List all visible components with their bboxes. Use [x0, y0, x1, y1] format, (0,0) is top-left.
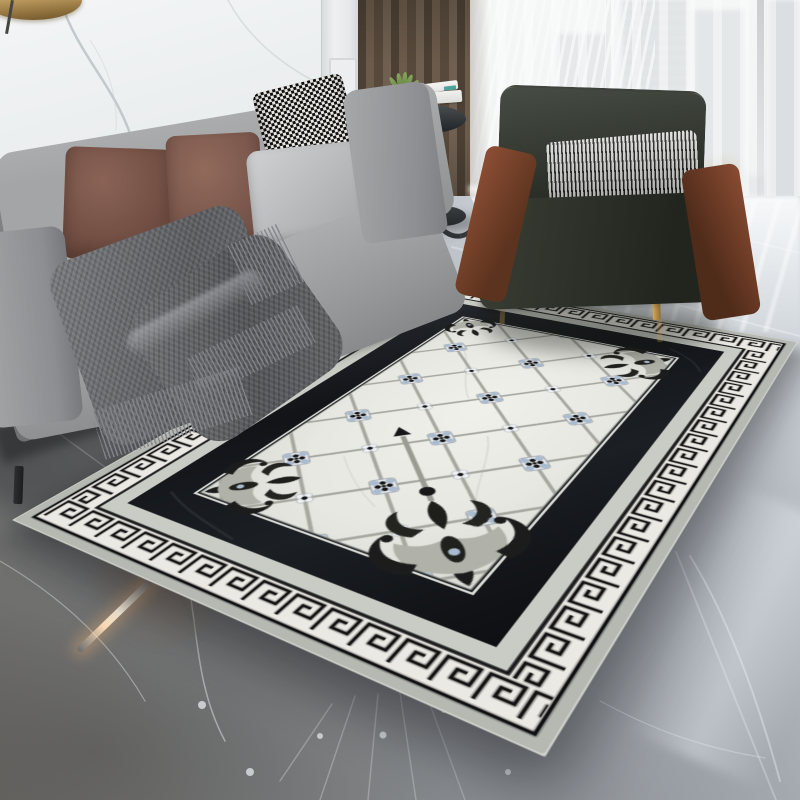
- sofa-leg: [13, 466, 23, 504]
- living-room-photo: [0, 0, 800, 800]
- leg-reflection: [657, 318, 663, 342]
